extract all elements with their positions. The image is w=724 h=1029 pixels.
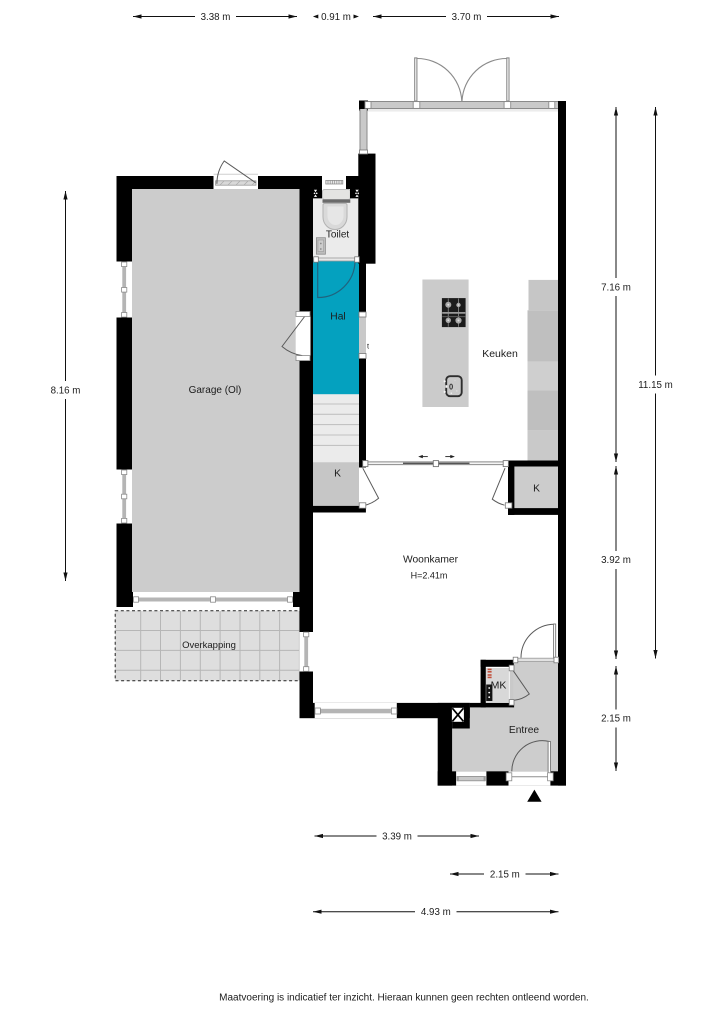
svg-text:11.15 m: 11.15 m [638,380,673,391]
svg-text:Garage (Ol): Garage (Ol) [189,385,242,396]
svg-text:0.91 m: 0.91 m [321,12,351,23]
svg-text:8.16 m: 8.16 m [51,386,81,397]
svg-text:Keuken: Keuken [482,348,518,360]
svg-text:3.39 m: 3.39 m [382,832,412,843]
svg-text:Overkapping: Overkapping [182,640,236,651]
svg-text:2.15 m: 2.15 m [601,714,631,725]
svg-text:Toilet: Toilet [326,230,350,241]
svg-text:MK: MK [491,680,507,692]
svg-text:2.15 m: 2.15 m [490,870,520,881]
svg-text:H=2.41m: H=2.41m [411,571,448,581]
svg-text:Woonkamer: Woonkamer [403,555,459,566]
svg-text:K: K [334,469,341,480]
svg-text:Maatvoering is indicatief ter: Maatvoering is indicatief ter inzicht. H… [219,993,589,1004]
svg-text:Entree: Entree [509,725,539,736]
svg-text:7.16 m: 7.16 m [601,283,631,294]
svg-text:Hal: Hal [330,312,345,323]
svg-text:3.92 m: 3.92 m [601,555,631,566]
svg-text:4.93 m: 4.93 m [421,907,451,918]
svg-text:3.70 m: 3.70 m [452,12,482,23]
svg-text:3.38 m: 3.38 m [201,12,231,23]
svg-text:K: K [533,484,540,495]
